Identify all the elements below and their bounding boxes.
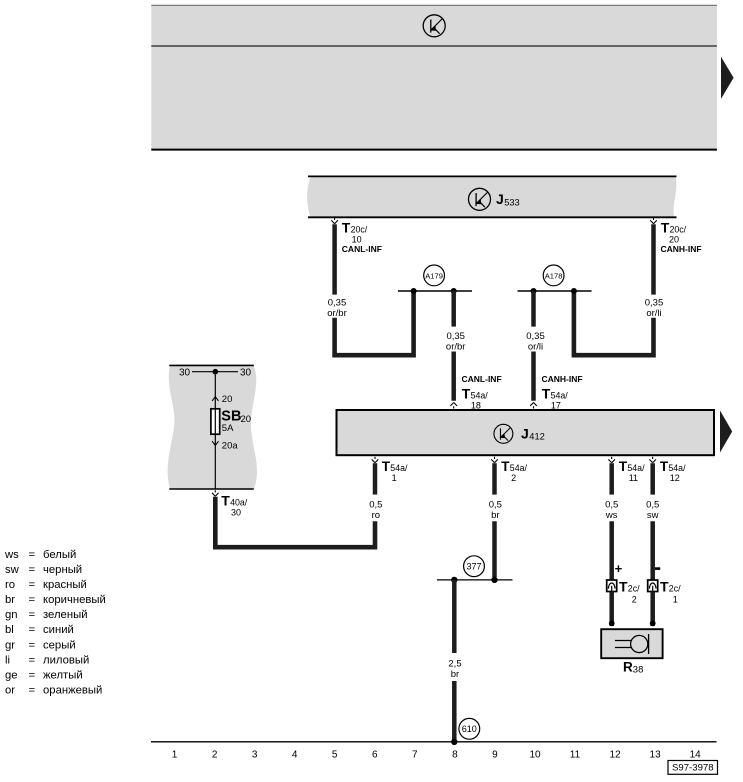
svg-text:ro: ro — [372, 510, 380, 521]
svg-text:br: br — [5, 594, 15, 606]
svg-text:sw: sw — [647, 510, 659, 521]
svg-text:=: = — [29, 669, 36, 681]
svg-text:=: = — [29, 594, 36, 606]
svg-text:+: + — [615, 561, 623, 576]
svg-text:ro: ro — [5, 579, 15, 591]
svg-text:2c/: 2c/ — [669, 583, 681, 593]
svg-text:J: J — [496, 191, 504, 207]
svg-text:=: = — [29, 654, 36, 666]
svg-text:br: br — [491, 510, 499, 521]
svg-text:30: 30 — [179, 368, 191, 379]
svg-text:2: 2 — [212, 750, 218, 761]
svg-text:gr: gr — [5, 639, 15, 651]
svg-text:зеленый: зеленый — [43, 609, 88, 621]
svg-text:оранжевый: оранжевый — [43, 684, 102, 696]
svg-text:T: T — [661, 219, 670, 235]
svg-text:20c/: 20c/ — [670, 224, 687, 234]
svg-text:54a/: 54a/ — [627, 463, 645, 473]
svg-text:li: li — [5, 654, 10, 666]
svg-text:=: = — [29, 549, 36, 561]
svg-text:br: br — [451, 669, 459, 680]
svg-text:0,35: 0,35 — [645, 297, 664, 308]
svg-text:R: R — [623, 660, 633, 675]
svg-text:or/br: or/br — [446, 341, 466, 352]
svg-text:11: 11 — [570, 750, 581, 761]
svg-text:7: 7 — [412, 750, 418, 761]
svg-text:T: T — [660, 578, 669, 594]
svg-text:14: 14 — [690, 750, 702, 761]
svg-text:38: 38 — [633, 665, 644, 676]
svg-text:54a/: 54a/ — [390, 463, 408, 473]
svg-text:черный: черный — [43, 564, 82, 576]
svg-text:54a/: 54a/ — [551, 391, 569, 401]
svg-text:CANH-INF: CANH-INF — [661, 244, 702, 254]
svg-text:or/li: or/li — [528, 341, 543, 352]
svg-text:ge: ge — [5, 669, 18, 681]
svg-text:5: 5 — [332, 750, 338, 761]
svg-text:2,5: 2,5 — [448, 658, 461, 669]
svg-text:T: T — [342, 219, 351, 235]
svg-text:CANL-INF: CANL-INF — [462, 374, 502, 384]
svg-text:0,5: 0,5 — [369, 500, 382, 511]
svg-text:6: 6 — [372, 750, 378, 761]
svg-text:лиловый: лиловый — [43, 654, 89, 666]
svg-text:красный: красный — [43, 579, 87, 591]
svg-text:T: T — [462, 386, 471, 402]
svg-text:=: = — [29, 684, 36, 696]
svg-text:20: 20 — [669, 234, 679, 244]
svg-text:белый: белый — [43, 549, 76, 561]
svg-text:0,35: 0,35 — [526, 331, 545, 342]
svg-text:gn: gn — [5, 609, 18, 621]
svg-text:10: 10 — [529, 750, 541, 761]
svg-text:or/br: or/br — [327, 308, 347, 319]
svg-text:5A: 5A — [222, 423, 234, 434]
svg-text:sw: sw — [5, 564, 20, 576]
svg-text:12: 12 — [670, 473, 680, 483]
svg-text:серый: серый — [43, 639, 76, 651]
svg-text:9: 9 — [492, 750, 498, 761]
svg-text:2: 2 — [511, 473, 516, 483]
svg-text:bl: bl — [5, 624, 14, 636]
svg-text:or: or — [5, 684, 15, 696]
svg-text:синий: синий — [43, 624, 74, 636]
svg-text:1: 1 — [392, 473, 397, 483]
svg-text:1: 1 — [673, 595, 678, 605]
svg-text:1: 1 — [172, 750, 178, 761]
svg-text:20: 20 — [222, 394, 233, 405]
svg-text:10: 10 — [352, 234, 362, 244]
svg-text:0,5: 0,5 — [646, 500, 659, 511]
svg-text:коричневый: коричневый — [43, 594, 106, 606]
svg-text:20: 20 — [241, 414, 252, 425]
svg-text:=: = — [29, 624, 36, 636]
svg-text:20c/: 20c/ — [351, 224, 368, 234]
svg-text:=: = — [29, 609, 36, 621]
svg-text:CANH-INF: CANH-INF — [542, 374, 583, 384]
svg-text:3: 3 — [252, 750, 258, 761]
svg-text:or/li: or/li — [646, 308, 661, 319]
svg-text:ws: ws — [605, 510, 618, 521]
svg-text:0,35: 0,35 — [328, 297, 347, 308]
svg-text:=: = — [29, 579, 36, 591]
svg-text:T: T — [542, 386, 551, 402]
svg-text:12: 12 — [610, 750, 622, 761]
svg-text:4: 4 — [292, 750, 298, 761]
svg-text:533: 533 — [504, 197, 520, 207]
svg-text:412: 412 — [529, 432, 545, 442]
svg-text:=: = — [29, 564, 36, 576]
svg-text:8: 8 — [452, 750, 458, 761]
svg-text:30: 30 — [231, 508, 241, 518]
svg-text:13: 13 — [650, 750, 662, 761]
svg-text:A178: A178 — [545, 271, 563, 280]
svg-text:SB: SB — [221, 408, 241, 424]
svg-text:0,5: 0,5 — [489, 500, 502, 511]
svg-text:T: T — [221, 493, 230, 509]
svg-text:J: J — [521, 426, 529, 442]
svg-text:желтый: желтый — [43, 669, 83, 681]
svg-text:A179: A179 — [425, 271, 443, 280]
svg-text:0,5: 0,5 — [605, 500, 618, 511]
svg-text:54a/: 54a/ — [471, 391, 489, 401]
svg-text:54a/: 54a/ — [510, 463, 528, 473]
svg-text:=: = — [29, 639, 36, 651]
svg-text:40a/: 40a/ — [230, 498, 248, 508]
svg-text:11: 11 — [629, 473, 638, 483]
svg-text:2: 2 — [632, 595, 637, 605]
svg-text:20a: 20a — [222, 441, 239, 452]
svg-text:CANL-INF: CANL-INF — [342, 244, 382, 254]
svg-text:377: 377 — [466, 562, 481, 572]
svg-text:610: 610 — [462, 724, 477, 734]
svg-text:T: T — [619, 578, 628, 594]
svg-text:0,35: 0,35 — [446, 331, 465, 342]
svg-text:2c/: 2c/ — [628, 583, 640, 593]
svg-text:54a/: 54a/ — [668, 463, 686, 473]
svg-text:ws: ws — [4, 549, 19, 561]
svg-text:30: 30 — [240, 368, 252, 379]
svg-text:S97-3978: S97-3978 — [672, 763, 714, 774]
